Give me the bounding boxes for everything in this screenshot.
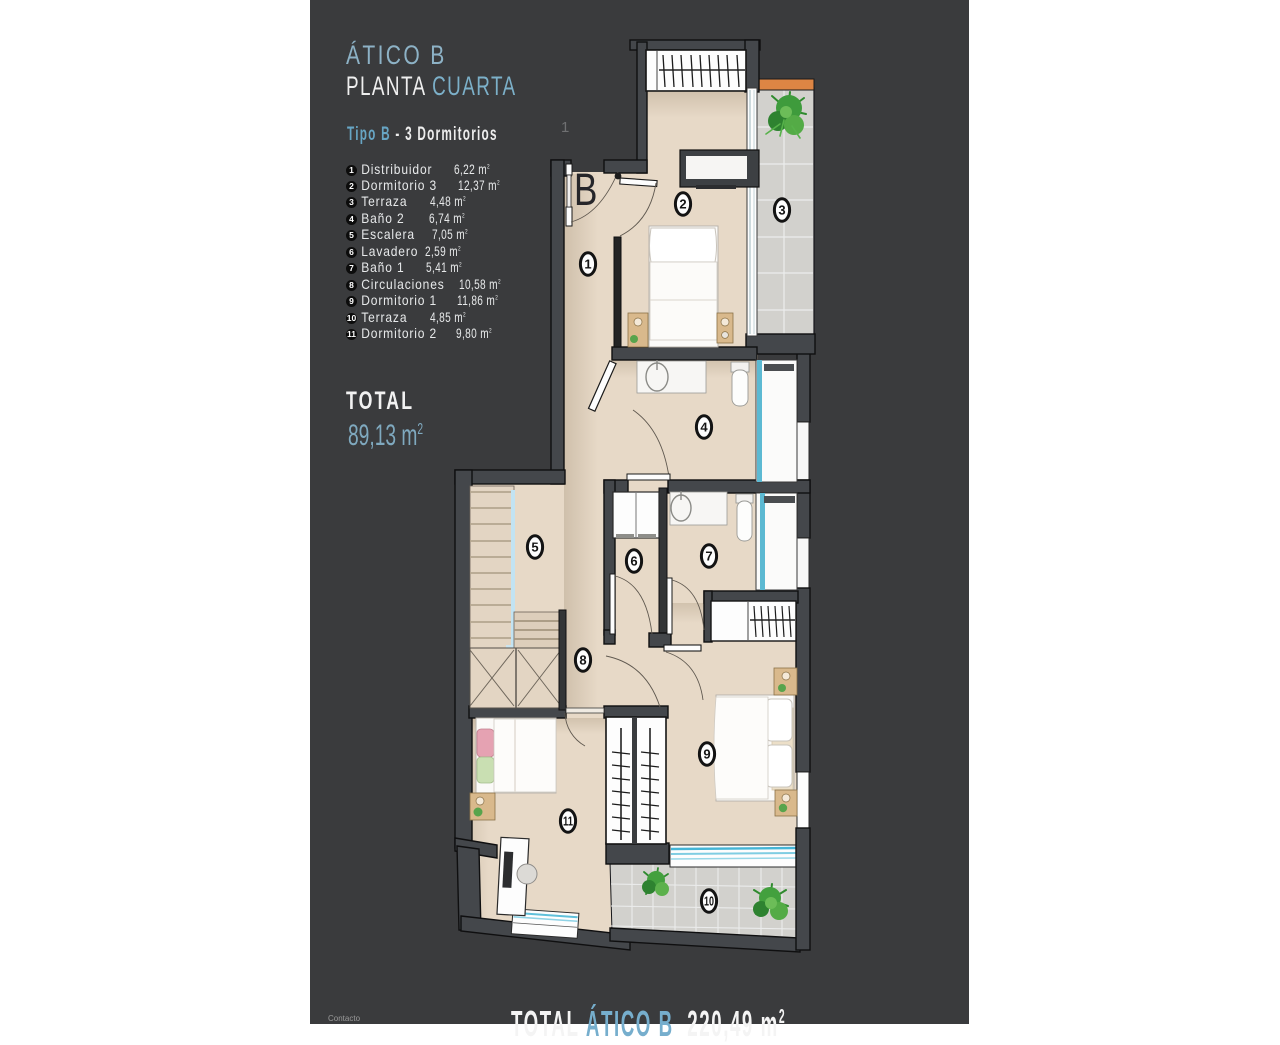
- svg-text:1: 1: [584, 256, 591, 271]
- svg-text:2: 2: [679, 196, 686, 211]
- svg-text:9: 9: [703, 746, 710, 761]
- svg-text:7: 7: [705, 548, 712, 563]
- svg-text:8: 8: [579, 652, 586, 667]
- svg-text:1: 1: [561, 119, 569, 136]
- svg-text:B: B: [574, 164, 597, 215]
- svg-text:6: 6: [630, 553, 637, 568]
- svg-text:5: 5: [531, 539, 538, 554]
- svg-text:11: 11: [563, 813, 573, 828]
- svg-text:4: 4: [700, 419, 708, 434]
- svg-text:3: 3: [778, 202, 785, 217]
- svg-text:10: 10: [704, 893, 714, 908]
